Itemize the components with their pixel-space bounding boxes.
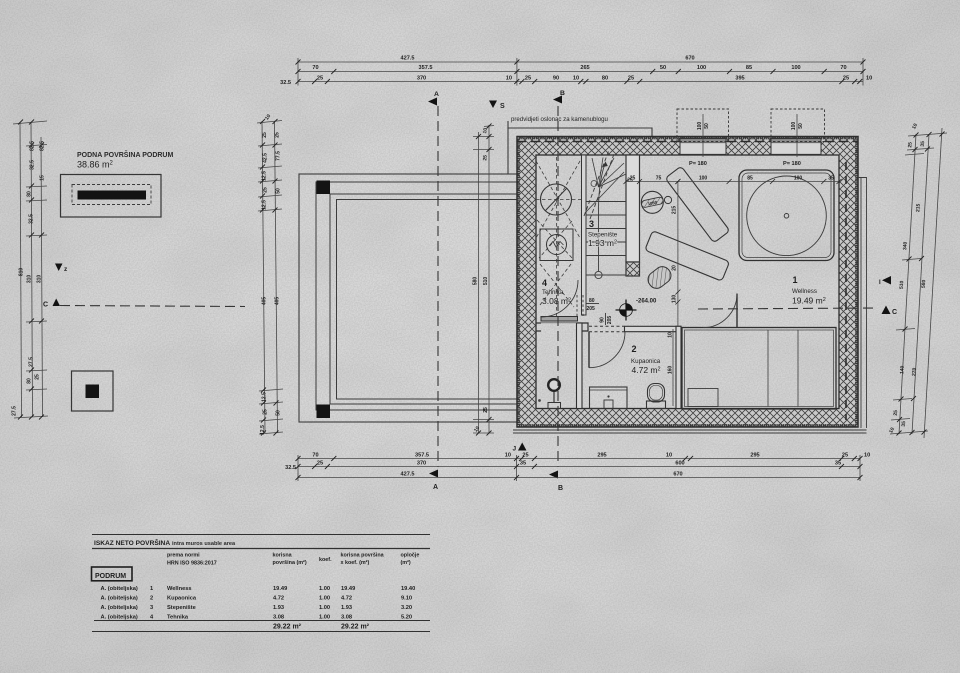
svg-text:32.5: 32.5 [30,160,36,170]
svg-text:x koef. (m²): x koef. (m²) [341,560,370,566]
svg-text:-264.00: -264.00 [636,299,657,305]
svg-text:427.5: 427.5 [401,56,415,62]
svg-text:9.10: 9.10 [401,596,412,602]
svg-text:površina (m²): površina (m²) [273,560,307,566]
svg-text:Wellness: Wellness [792,288,817,295]
svg-text:3.08: 3.08 [273,615,284,621]
svg-text:82.5: 82.5 [30,141,36,151]
svg-text:19.49: 19.49 [273,586,287,592]
svg-text:75: 75 [656,176,662,182]
svg-text:35: 35 [835,461,841,467]
svg-text:80: 80 [602,76,608,82]
svg-text:10: 10 [666,453,672,459]
svg-text:korisna: korisna [273,553,293,559]
svg-text:4.72: 4.72 [273,596,284,602]
svg-text:25: 25 [893,410,899,416]
svg-text:1.93: 1.93 [273,605,284,611]
svg-text:310: 310 [27,275,33,284]
svg-text:koef.: koef. [319,557,332,563]
svg-text:357.5: 357.5 [415,453,429,459]
svg-text:80: 80 [27,191,33,197]
svg-text:82.5: 82.5 [40,141,46,151]
svg-text:25: 25 [482,155,488,161]
svg-text:prema normi: prema normi [167,553,200,559]
svg-text:Kupaonica: Kupaonica [167,596,197,602]
svg-text:ISKAZ NETO POVRŠINA: ISKAZ NETO POVRŠINA [94,538,170,547]
svg-text:340: 340 [902,241,909,250]
svg-text:130: 130 [672,295,678,304]
svg-text:25: 25 [843,76,849,82]
svg-text:3: 3 [589,219,594,229]
svg-text:70: 70 [312,453,318,459]
svg-text:295: 295 [750,453,759,459]
svg-text:1.93: 1.93 [341,605,352,611]
svg-text:5.20: 5.20 [401,615,412,621]
svg-text:3.20: 3.20 [401,605,412,611]
svg-text:A: A [433,484,438,491]
svg-text:12.5: 12.5 [262,200,268,210]
svg-text:35: 35 [520,461,526,467]
svg-text:B: B [560,90,565,97]
svg-text:12.5: 12.5 [262,392,268,402]
svg-text:25: 25 [628,76,634,82]
svg-text:50: 50 [798,123,804,129]
svg-text:215: 215 [915,203,922,212]
svg-text:25: 25 [630,176,636,182]
svg-text:25: 25 [525,76,531,82]
svg-text:A. (obiteljska): A. (obiteljska) [101,615,138,621]
svg-text:A: A [434,91,439,98]
svg-text:205: 205 [607,316,613,325]
svg-text:100: 100 [791,65,800,71]
svg-text:Tehnika: Tehnika [167,615,189,621]
svg-text:10: 10 [573,76,579,82]
svg-text:29.22 m²: 29.22 m² [341,624,370,631]
svg-text:405: 405 [275,297,281,306]
svg-text:100: 100 [697,122,703,131]
svg-text:70: 70 [840,65,846,71]
svg-text:405: 405 [262,297,268,306]
svg-text:25: 25 [483,407,489,413]
svg-text:intra muros usable area: intra muros usable area [172,541,236,547]
svg-text:25: 25 [262,132,268,138]
svg-text:90: 90 [600,317,606,323]
svg-text:10: 10 [866,76,872,82]
svg-text:1: 1 [150,586,153,592]
svg-text:2: 2 [150,596,153,602]
svg-text:85: 85 [746,65,752,71]
svg-text:Tehnika: Tehnika [542,289,564,296]
svg-text:19.49: 19.49 [341,586,355,592]
svg-text:580: 580 [473,277,479,286]
svg-text:357.5: 357.5 [419,65,433,71]
svg-text:27.5: 27.5 [12,406,18,416]
svg-text:1.00: 1.00 [319,615,330,621]
svg-text:predvidjeti oslonac za kamenub: predvidjeti oslonac za kamenublogu [511,116,608,123]
svg-text:25: 25 [35,374,41,380]
svg-text:S: S [500,103,505,110]
svg-text:25: 25 [263,409,269,415]
svg-text:25: 25 [317,76,323,82]
svg-text:80: 80 [27,378,33,384]
svg-text:70: 70 [312,65,318,71]
svg-text:32.5: 32.5 [285,465,296,471]
svg-text:510: 510 [483,277,489,286]
svg-text:PODRUM: PODRUM [95,573,126,580]
svg-text:395: 395 [735,76,744,82]
svg-text:1: 1 [793,275,798,285]
svg-text:42.5: 42.5 [263,153,269,163]
svg-text:P= 180: P= 180 [783,161,801,167]
svg-text:310: 310 [37,275,43,284]
svg-text:C: C [43,302,48,309]
svg-text:35: 35 [901,421,907,427]
svg-text:10: 10 [505,453,511,459]
svg-text:370: 370 [417,461,426,467]
svg-text:50: 50 [276,410,282,416]
svg-text:12.5: 12.5 [262,171,268,181]
svg-text:205: 205 [587,306,596,312]
svg-text:670: 670 [673,472,682,478]
svg-text:38.86 m2: 38.86 m2 [77,160,114,170]
svg-text:3: 3 [150,605,153,611]
svg-text:Kupaonica: Kupaonica [631,358,661,365]
svg-text:C: C [892,309,897,316]
svg-text:510: 510 [899,280,906,289]
svg-text:370: 370 [417,76,426,82]
svg-text:265: 265 [580,65,589,71]
svg-text:427.5: 427.5 [401,472,415,478]
svg-text:A. (obiteljska): A. (obiteljska) [101,586,138,592]
svg-text:12.5: 12.5 [260,425,266,435]
svg-text:A. (obiteljska): A. (obiteljska) [101,605,138,611]
svg-text:25: 25 [907,142,913,148]
svg-text:10: 10 [668,332,674,338]
svg-text:25: 25 [317,461,323,467]
svg-text:(m²): (m²) [401,560,411,566]
svg-text:korisna površina: korisna površina [341,553,385,559]
svg-text:1.00: 1.00 [319,596,330,602]
svg-text:Stepenište: Stepenište [167,605,196,611]
svg-text:295: 295 [597,453,606,459]
svg-text:A. (obiteljska): A. (obiteljska) [101,596,138,602]
svg-text:3.08 m2: 3.08 m2 [542,296,571,306]
svg-text:10: 10 [864,453,870,459]
svg-text:100: 100 [794,176,803,182]
svg-text:90: 90 [553,76,559,82]
svg-text:25: 25 [263,187,269,193]
svg-text:77.5: 77.5 [276,151,282,161]
svg-text:20: 20 [672,265,678,271]
svg-text:19.49 m2: 19.49 m2 [792,296,826,306]
svg-text:160: 160 [668,366,674,375]
svg-text:35: 35 [828,176,834,182]
svg-text:15: 15 [40,175,46,181]
svg-text:25: 25 [275,132,281,138]
svg-text:25: 25 [522,453,528,459]
svg-text:1.00: 1.00 [319,586,330,592]
svg-text:3.08: 3.08 [341,615,352,621]
svg-text:100: 100 [697,65,706,71]
svg-text:25: 25 [842,453,848,459]
svg-text:270: 270 [911,367,918,376]
svg-text:100: 100 [791,122,797,131]
svg-text:140: 140 [899,365,906,374]
svg-text:J: J [513,446,517,453]
svg-text:50: 50 [704,123,710,129]
svg-text:50: 50 [660,65,666,71]
svg-text:215: 215 [672,206,678,215]
svg-text:100: 100 [699,176,708,182]
svg-text:19.40: 19.40 [401,586,415,592]
svg-text:29.22 m²: 29.22 m² [273,624,302,631]
svg-text:1.00: 1.00 [319,605,330,611]
svg-text:50: 50 [276,188,282,194]
svg-text:HRN ISO 9836:2017: HRN ISO 9836:2017 [167,561,217,567]
svg-text:32.5: 32.5 [280,80,291,86]
svg-text:810: 810 [19,268,25,277]
svg-text:85: 85 [747,176,753,182]
svg-text:PODNA POVRŠINA PODRUM: PODNA POVRŠINA PODRUM [77,150,173,159]
svg-text:670: 670 [685,56,694,62]
svg-text:10: 10 [506,76,512,82]
svg-text:600: 600 [675,461,684,467]
svg-text:580: 580 [921,279,928,288]
svg-text:opločje: opločje [401,553,420,559]
svg-text:1.93 m2: 1.93 m2 [588,238,617,248]
svg-text:4: 4 [542,278,547,288]
svg-text:4.72: 4.72 [341,596,352,602]
svg-text:2: 2 [632,344,637,354]
svg-text:32.5: 32.5 [29,214,35,224]
svg-text:B: B [558,485,563,492]
svg-text:27.5: 27.5 [29,357,35,367]
svg-text:P= 180: P= 180 [689,161,707,167]
svg-text:35: 35 [920,141,926,147]
svg-text:4.72 m2: 4.72 m2 [632,365,661,375]
svg-text:Wellness: Wellness [167,586,192,592]
